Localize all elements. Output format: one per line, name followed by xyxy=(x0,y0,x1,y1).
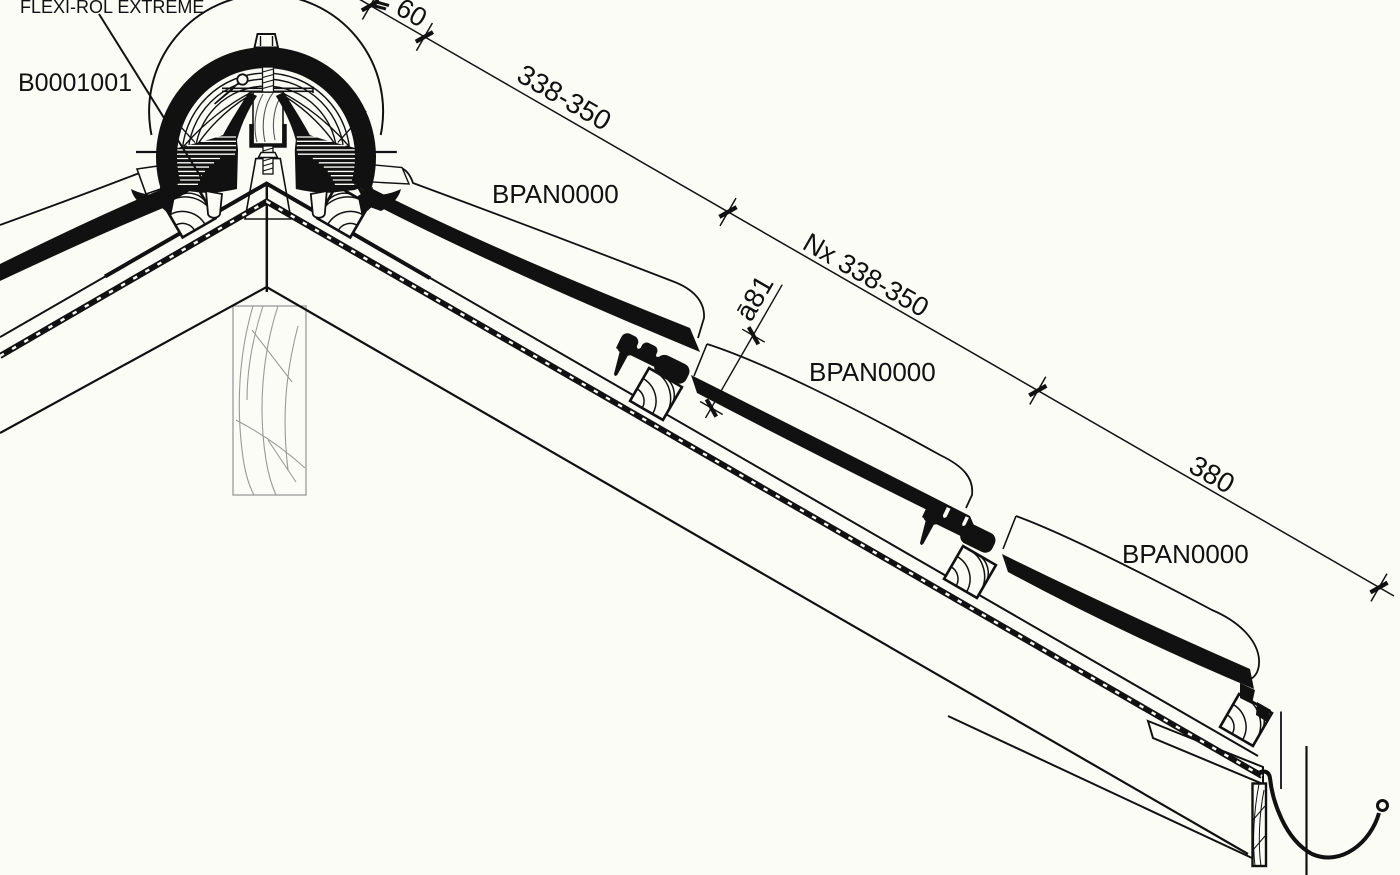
svg-text:BPAN0000: BPAN0000 xyxy=(1122,539,1249,569)
svg-text:BPAN0000: BPAN0000 xyxy=(809,357,936,387)
svg-text:BPAN0000: BPAN0000 xyxy=(492,179,619,209)
svg-text:FLEXI-ROL EXTREME: FLEXI-ROL EXTREME xyxy=(20,0,204,17)
svg-text:B0001001: B0001001 xyxy=(18,69,132,97)
